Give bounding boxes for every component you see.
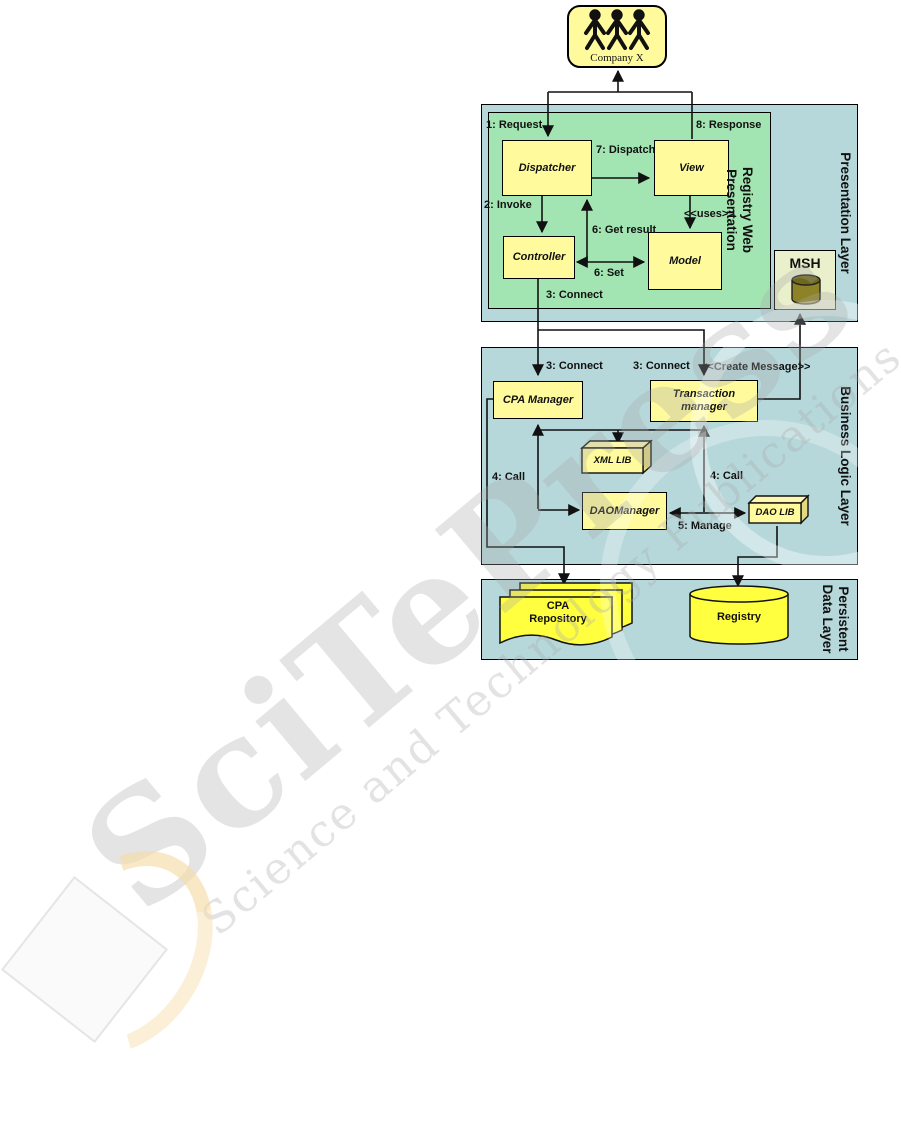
presentation-layer-label: Presentation Layer [837, 152, 853, 274]
watermark-logo-crescent [2, 819, 248, 1085]
edge-label-connect-presentation: 3: Connect [546, 289, 603, 301]
model-box: Model [648, 232, 722, 290]
edge-label-connect-right: 3: Connect [633, 360, 690, 372]
architecture-diagram: Presentation Layer Registry Web Presenta… [0, 0, 901, 1130]
edge-label-invoke: 2: Invoke [484, 199, 532, 211]
view-box: View [654, 140, 729, 196]
business-logic-layer-label: Business Logic Layer [837, 386, 853, 526]
cpa-repository-label: CPA Repository [518, 600, 598, 626]
edge-label-call-right: 4: Call [710, 470, 743, 482]
dispatcher-box: Dispatcher [502, 140, 592, 196]
msh-box: MSH [774, 250, 836, 310]
registry-label: Registry [699, 611, 779, 624]
edge-label-response: 8: Response [696, 119, 761, 131]
edge-label-connect-left: 3: Connect [546, 360, 603, 372]
edge-label-uses: <<uses>> [684, 208, 735, 220]
persistent-label-line1: Persistent [835, 584, 851, 653]
persistent-data-layer-label: Persistent Data Layer [819, 584, 851, 653]
edge-label-manage: 5: Manage [678, 520, 732, 532]
people-icon [569, 7, 665, 51]
dao-manager-box: DAOManager [582, 492, 667, 530]
xml-lib-label: XML LIB [582, 455, 643, 466]
registry-web-label-line1: Registry Web [739, 167, 755, 253]
edge-label-set: 6: Set [594, 267, 624, 279]
edge-label-dispatch: 7: Dispatch [596, 144, 655, 156]
persistent-label-line2: Data Layer [819, 584, 835, 653]
msh-label: MSH [775, 255, 835, 271]
watermark-logo-diamond [1, 876, 168, 1043]
edge-label-request: 1: Request [486, 119, 542, 131]
transaction-manager-box: Transaction manager [650, 380, 758, 422]
edge-label-get-result: 6: Get result [592, 224, 656, 236]
cpa-manager-box: CPA Manager [493, 381, 583, 419]
msh-database-icon [775, 273, 837, 309]
company-x-label: Company X [569, 52, 665, 64]
dao-lib-label: DAO LIB [749, 507, 801, 518]
company-x-actor: Company X [567, 5, 667, 68]
edge-label-call-left: 4: Call [492, 471, 525, 483]
controller-box: Controller [503, 236, 575, 279]
edge-label-create-message: <<Create Message>> [701, 361, 810, 373]
